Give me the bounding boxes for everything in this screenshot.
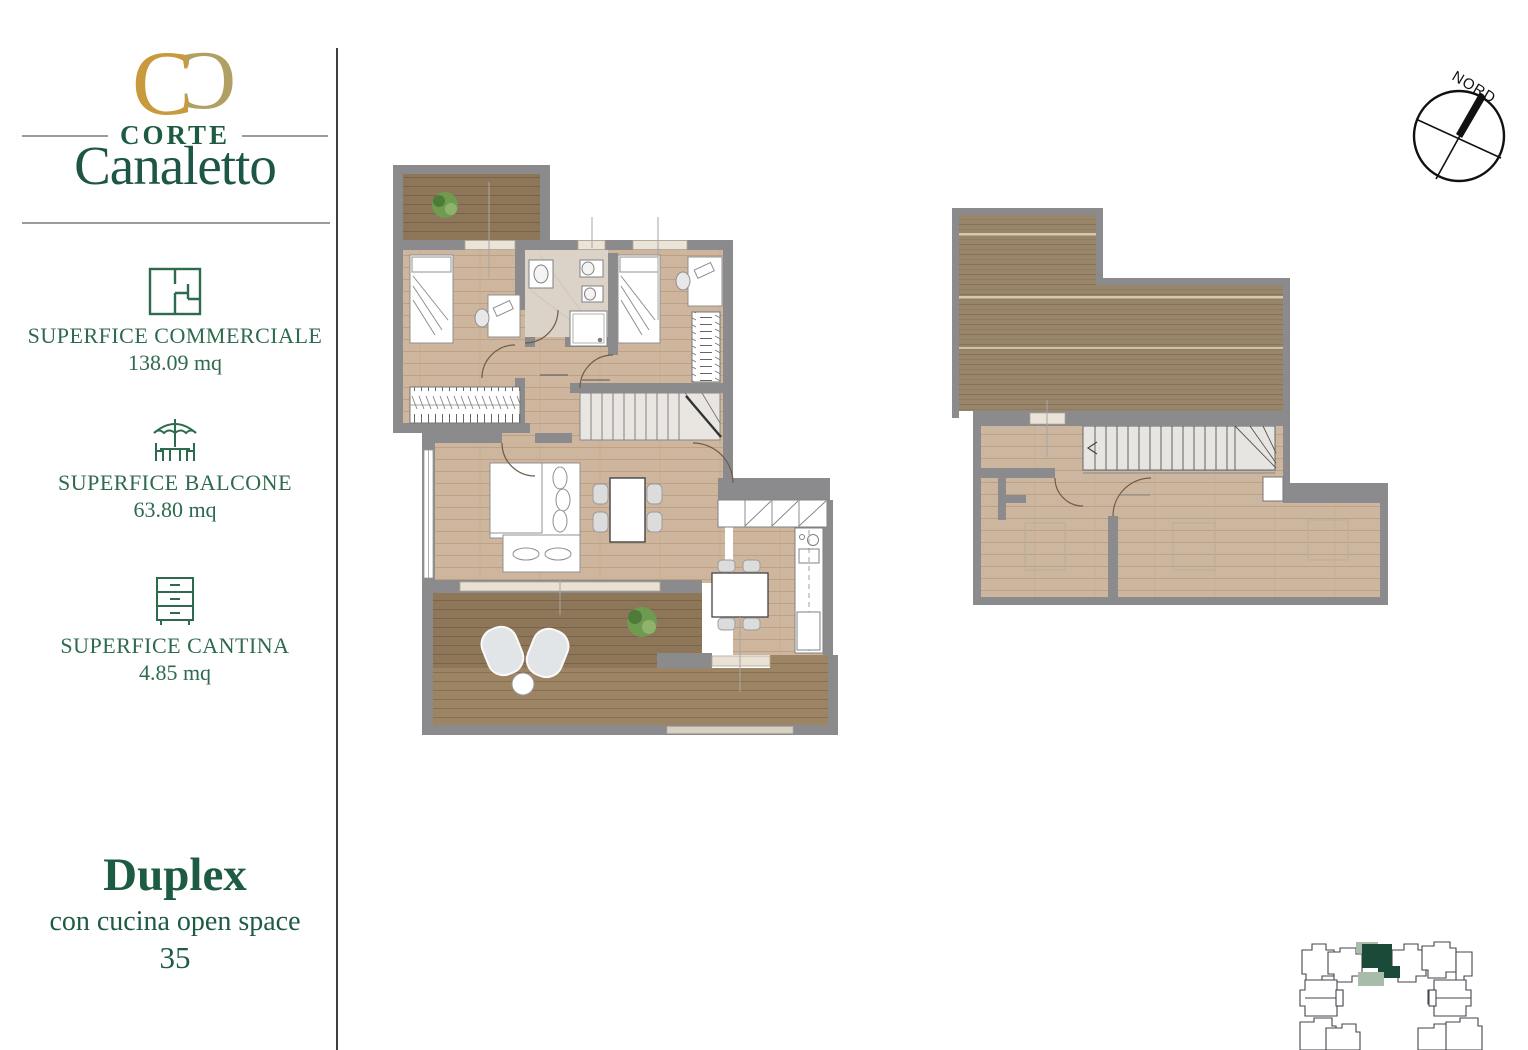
upper-staircase bbox=[1083, 426, 1276, 473]
stat-label: SUPERFICE BALCONE bbox=[0, 470, 350, 496]
upper-floor-plan bbox=[945, 195, 1395, 615]
roof-terrace-deck bbox=[959, 215, 1283, 411]
corte-canaletto-logo: C C bbox=[0, 26, 350, 125]
stat-superfice-commerciale: SUPERFICE COMMERCIALE 138.09 mq bbox=[0, 266, 350, 376]
sidebar: C C CORTE Canaletto SUPERFICE COMMERCIAL… bbox=[0, 0, 350, 1050]
stat-label: SUPERFICE COMMERCIALE bbox=[0, 323, 350, 349]
balcony-umbrella-icon bbox=[146, 413, 204, 465]
unit-type: Duplex bbox=[0, 848, 350, 902]
north-compass: NORD bbox=[1403, 43, 1523, 193]
stat-superfice-balcone: SUPERFICE BALCONE 63.80 mq bbox=[0, 413, 350, 523]
stat-value: 138.09 mq bbox=[0, 349, 350, 376]
brand-underline bbox=[22, 222, 330, 224]
stat-superfice-cantina: SUPERFICE CANTINA 4.85 mq bbox=[0, 574, 350, 686]
svg-text:C: C bbox=[132, 32, 193, 120]
staircase bbox=[580, 393, 721, 440]
floorplan-icon bbox=[147, 266, 203, 318]
vertical-divider bbox=[336, 48, 338, 1050]
floorplan-brochure-page: C C CORTE Canaletto SUPERFICE COMMERCIAL… bbox=[0, 0, 1528, 1050]
main-floor-plan bbox=[390, 160, 860, 760]
stat-value: 63.80 mq bbox=[0, 496, 350, 523]
stat-label: SUPERFICE CANTINA bbox=[0, 633, 350, 659]
compass-label: NORD bbox=[1449, 68, 1499, 107]
logo-monogram-icon: C C bbox=[112, 26, 238, 120]
balcony-top-deck bbox=[403, 174, 540, 240]
unit-number: 35 bbox=[0, 940, 350, 976]
brand-name: Canaletto bbox=[0, 134, 350, 197]
site-key-plan bbox=[1288, 928, 1498, 1050]
unit-subtitle: con cucina open space bbox=[0, 906, 350, 938]
cellar-drawers-icon bbox=[152, 574, 198, 628]
stat-value: 4.85 mq bbox=[0, 659, 350, 686]
